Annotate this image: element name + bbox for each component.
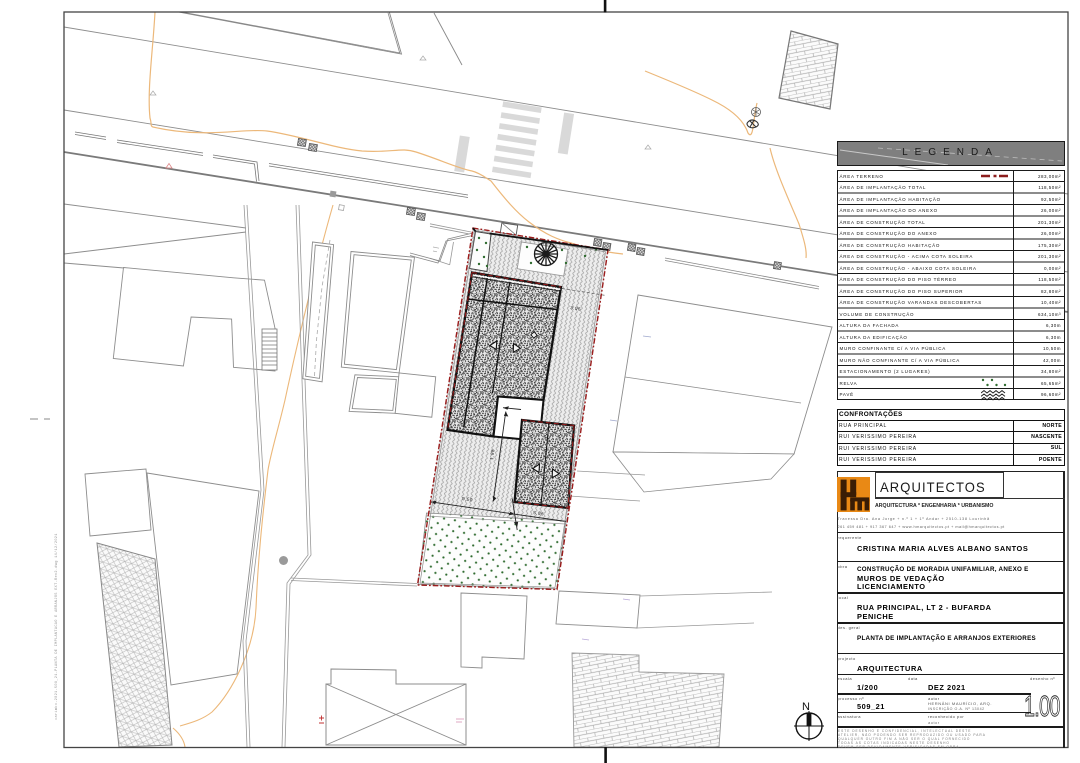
svg-text:carimbo-2021-509_21-PLANTA DE: carimbo-2021-509_21-PLANTA DE IMPLANTACA…: [54, 533, 59, 720]
svg-text:1.00: 1.00: [1024, 691, 1060, 721]
